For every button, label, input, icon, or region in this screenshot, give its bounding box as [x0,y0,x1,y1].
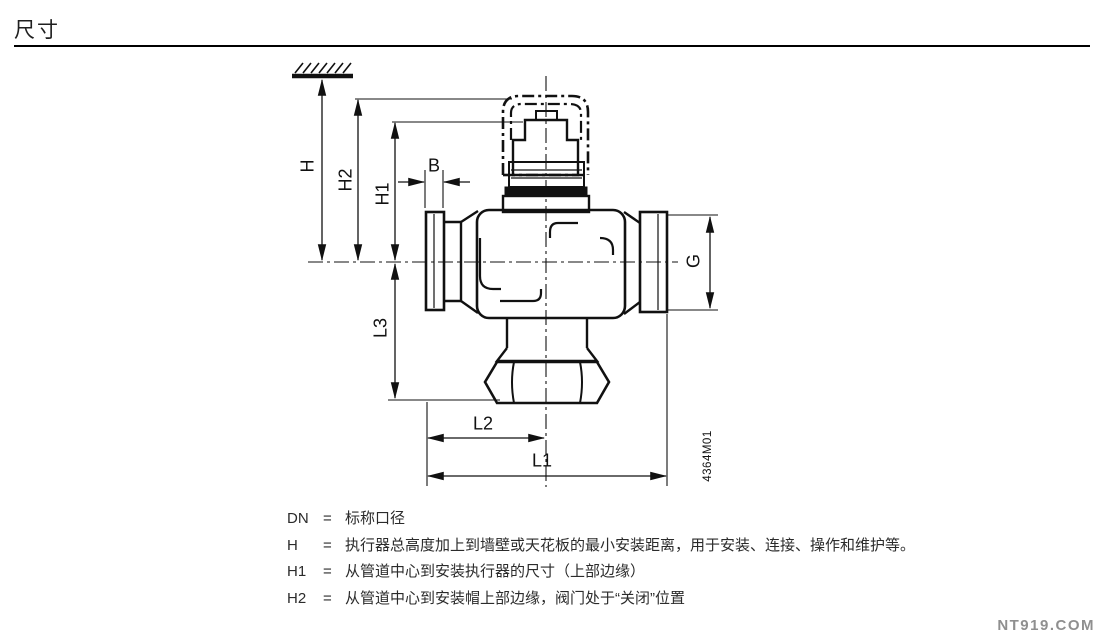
datasheet-page: 尺寸 [0,0,1104,639]
legend-equals: = [323,506,345,533]
legend-equals: = [323,533,345,560]
dim-label-l1: L1 [532,451,552,472]
legend-description: 执行器总高度加上到墙壁或天花板的最小安装距离，用于安装、连接、操作和维护等。 [345,533,915,560]
legend-row-dn: DN = 标称口径 [287,506,915,533]
legend-symbol: H [287,533,323,560]
dim-label-h: H [298,160,319,173]
dim-label-h2: H2 [336,168,357,191]
dim-label-l3: L3 [371,318,392,338]
legend-description: 从管道中心到安装执行器的尺寸（上部边缘） [345,559,645,586]
dim-label-b: B [428,156,440,177]
legend-row-h2: H2 = 从管道中心到安装帽上部边缘，阀门处于“关闭”位置 [287,586,915,613]
legend-equals: = [323,586,345,613]
legend-symbol: DN [287,506,323,533]
watermark: NT919.COM [997,617,1095,634]
legend-equals: = [323,559,345,586]
ceiling-hatch-symbol [292,63,353,76]
dim-label-h1: H1 [373,182,394,205]
legend-row-h: H = 执行器总高度加上到墙壁或天花板的最小安装距离，用于安装、连接、操作和维护… [287,533,915,560]
dim-label-l2: L2 [473,414,493,435]
legend-symbol: H2 [287,586,323,613]
legend-symbol: H1 [287,559,323,586]
legend-row-h1: H1 = 从管道中心到安装执行器的尺寸（上部边缘） [287,559,915,586]
extension-lines [355,99,718,486]
legend-description: 从管道中心到安装帽上部边缘，阀门处于“关闭”位置 [345,586,685,613]
legend-description: 标称口径 [345,506,405,533]
drawing-code: 4364M01 [702,430,714,481]
dim-label-g: G [684,254,705,268]
dimension-legend: DN = 标称口径 H = 执行器总高度加上到墙壁或天花板的最小安装距离，用于安… [287,506,915,612]
